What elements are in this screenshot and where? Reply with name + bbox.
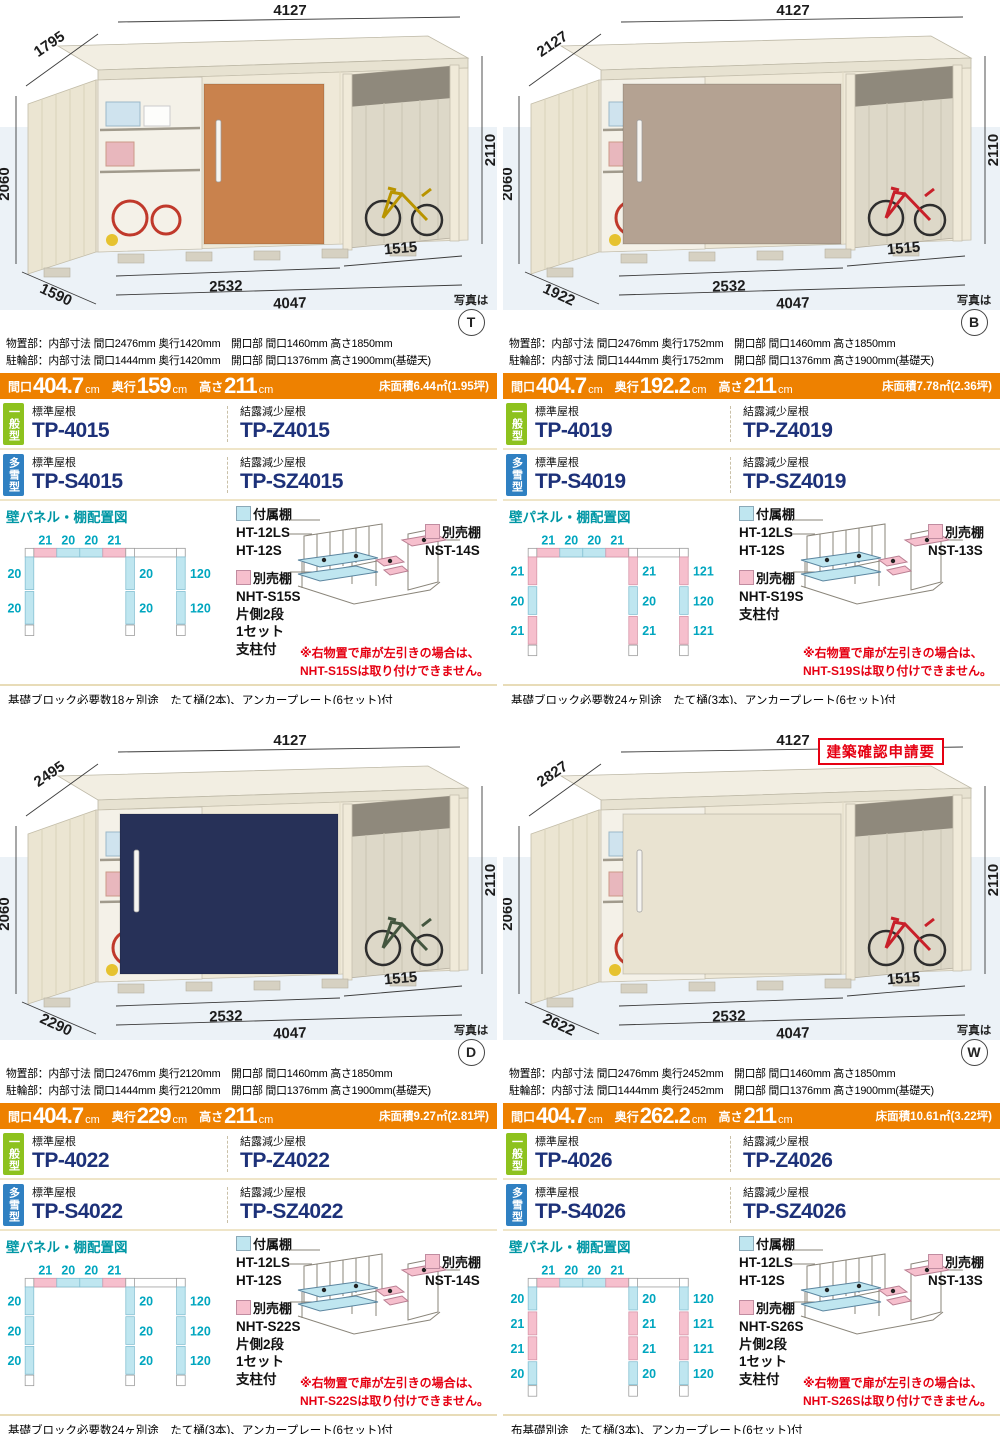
depth-value: 229	[137, 1103, 171, 1129]
warning-note: ※右物置で扉が左引きの場合は、 NHT-S22Sは取り付けできません。	[300, 1374, 489, 1410]
svg-text:21: 21	[107, 1264, 121, 1278]
svg-text:20: 20	[564, 1264, 578, 1278]
photo-badge-letter: B	[961, 309, 988, 336]
dim-front-bay: 1515	[886, 969, 921, 989]
panel-diagram-area: 壁パネル・棚配置図 2120202120202020120120	[6, 504, 236, 682]
roof-type-label: 結露減少屋根	[743, 1187, 1000, 1200]
height-value: 211	[744, 373, 777, 399]
building-approval-badge: 建築確認申請要	[818, 738, 945, 765]
height-label: 高さ	[719, 378, 743, 395]
photo-badge-letter: T	[458, 309, 485, 336]
svg-text:20: 20	[139, 568, 153, 582]
svg-text:20: 20	[7, 1295, 21, 1309]
general-type-badge: 一般型	[506, 403, 527, 445]
wall-panel-diagram: 21202021202020202020120120120	[6, 1257, 236, 1407]
floor-area: 床面積7.78㎡(2.36坪)	[882, 378, 992, 394]
svg-text:20: 20	[84, 1264, 98, 1278]
size-bar: 間口404.7cm 奥行192.2cm 高さ211cm 床面積7.78㎡(2.3…	[503, 373, 1000, 399]
attached-shelf-models: HT-12LS HT-12S	[739, 524, 795, 559]
width-value: 404.7	[536, 373, 586, 399]
attached-shelf-models: HT-12LS HT-12S	[236, 524, 292, 559]
optional-shelf-label: 別売棚	[945, 525, 984, 540]
depth-value: 262.2	[640, 1103, 690, 1129]
shed-photo: 4127 2127 2060 2110 2532 4047 1515 1922	[503, 2, 1000, 310]
attached-shelf-swatch	[236, 506, 251, 521]
attached-shelf-models: HT-12LS HT-12S	[739, 1254, 795, 1289]
dim-height-right: 2110	[482, 134, 497, 167]
wall-panel-diagram: 2120202120202020120120	[6, 527, 236, 677]
photo-badge-letter: W	[961, 1039, 988, 1066]
svg-text:21: 21	[510, 565, 524, 579]
svg-text:20: 20	[61, 1264, 75, 1278]
optional-shelf-label: 別売棚	[253, 1301, 292, 1316]
svg-text:21: 21	[38, 534, 52, 548]
model-general-dew: TP-Z4015	[240, 419, 497, 442]
door-handle	[637, 120, 642, 182]
svg-text:20: 20	[139, 602, 153, 616]
dim-width-top: 4127	[776, 2, 809, 19]
snow-type-row: 多雪型 標準屋根TP-S4015 結露減少屋根TP-SZ4015	[0, 450, 497, 501]
sliding-door	[623, 84, 841, 244]
size-bar: 間口404.7cm 奥行262.2cm 高さ211cm 床面積10.61㎡(3.…	[503, 1103, 1000, 1129]
model-snow-std: TP-S4026	[535, 1200, 730, 1223]
dim-front-storage: 2532	[712, 1007, 746, 1025]
model-snow-dew: TP-SZ4019	[743, 470, 1000, 493]
svg-text:121: 121	[693, 625, 714, 639]
svg-text:20: 20	[587, 1264, 601, 1278]
roof-type-label: 標準屋根	[32, 457, 227, 470]
storage-spec: 物置部：内部寸法 間口2476mm 奥行1752mm 開口部 間口1460mm …	[509, 336, 994, 353]
model-snow-std: TP-S4022	[32, 1200, 227, 1223]
roof-type-label: 結露減少屋根	[240, 1187, 497, 1200]
height-value: 211	[224, 373, 257, 399]
shed-illustration: 4127 1795 2060 2110 2532 4047 1515 1590	[0, 2, 497, 310]
depth-label: 奥行	[112, 378, 136, 395]
dim-height-right: 2110	[985, 134, 1000, 167]
snow-type-badge: 多雪型	[506, 1184, 527, 1226]
shed-photo: 4127 2827 2060 2110 2532 4047 1515 2622 …	[503, 732, 1000, 1040]
optional-shelf-swatch	[425, 524, 440, 539]
panel-heading: 壁パネル・棚配置図	[6, 506, 236, 526]
svg-text:121: 121	[693, 565, 714, 579]
snow-type-row: 多雪型 標準屋根TP-S4022 結露減少屋根TP-SZ4022	[0, 1180, 497, 1231]
svg-text:20: 20	[7, 602, 21, 616]
dim-width-top: 4127	[776, 732, 809, 749]
roof-type-label: 結露減少屋根	[743, 406, 1000, 419]
general-type-badge: 一般型	[3, 403, 24, 445]
height-label: 高さ	[719, 1108, 743, 1125]
roof-type-label: 標準屋根	[535, 1136, 730, 1149]
optional-shelf-label: 別売棚	[253, 571, 292, 586]
foundation-note: 基礎ブロック必要数24ヶ別途 たて樋(3本)、アンカープレート(6セット)付	[0, 1414, 497, 1434]
photo-caption: 写真は	[952, 292, 996, 308]
width-label: 間口	[8, 1108, 32, 1125]
snow-type-row: 多雪型 標準屋根TP-S4019 結露減少屋根TP-SZ4019	[503, 450, 1000, 501]
model-general-std: TP-4022	[32, 1149, 227, 1172]
sliding-door	[623, 814, 841, 974]
svg-text:20: 20	[139, 1355, 153, 1369]
floor-area: 床面積6.44㎡(1.95坪)	[379, 378, 489, 394]
shed-photo: 4127 2495 2060 2110 2532 4047 1515 2290	[0, 732, 497, 1040]
depth-label: 奥行	[615, 378, 639, 395]
svg-text:20: 20	[7, 1355, 21, 1369]
snow-type-row: 多雪型 標準屋根TP-S4026 結露減少屋根TP-SZ4026	[503, 1180, 1000, 1231]
shed-illustration: 4127 2495 2060 2110 2532 4047 1515 2290	[0, 732, 497, 1040]
panel-diagram-area: 壁パネル・棚配置図 21202021212021212021121120121	[509, 504, 739, 682]
svg-text:20: 20	[510, 1367, 524, 1381]
svg-text:21: 21	[642, 1318, 656, 1332]
warning-note: ※右物置で扉が左引きの場合は、 NHT-S26Sは取り付けできません。	[803, 1374, 992, 1410]
spec-lines: 物置部：内部寸法 間口2476mm 奥行2452mm 開口部 間口1460mm …	[503, 1040, 1000, 1101]
shed-illustration: 4127 2127 2060 2110 2532 4047 1515 1922	[503, 2, 1000, 310]
svg-text:21: 21	[510, 625, 524, 639]
svg-text:20: 20	[7, 1325, 21, 1339]
general-type-badge: 一般型	[506, 1133, 527, 1175]
depth-label: 奥行	[615, 1108, 639, 1125]
model-snow-dew: TP-SZ4022	[240, 1200, 497, 1223]
bike-spec: 駐輪部：内部寸法 間口1444mm 奥行1752mm 開口部 間口1376mm …	[509, 353, 994, 370]
attached-shelf-label: 付属棚	[253, 507, 292, 522]
width-label: 間口	[511, 1108, 535, 1125]
photo-caption: 写真は	[449, 1022, 493, 1038]
svg-text:21: 21	[541, 534, 555, 548]
bike-spec: 駐輪部：内部寸法 間口1444mm 奥行2120mm 開口部 間口1376mm …	[6, 1083, 491, 1100]
roof-type-label: 結露減少屋根	[743, 457, 1000, 470]
width-value: 404.7	[536, 1103, 586, 1129]
panel-heading: 壁パネル・棚配置図	[509, 1236, 739, 1256]
panel-section: 壁パネル・棚配置図 21202021212021212021121120121 …	[503, 501, 1000, 684]
height-label: 高さ	[199, 1108, 223, 1125]
model-general-std: TP-4019	[535, 419, 730, 442]
model-snow-dew: TP-SZ4026	[743, 1200, 1000, 1223]
spec-lines: 物置部：内部寸法 間口2476mm 奥行1752mm 開口部 間口1460mm …	[503, 310, 1000, 371]
optional-shelf-label: 別売棚	[442, 1255, 481, 1270]
model-table: 一般型 標準屋根TP-4015 結露減少屋根TP-Z4015 多雪型 標準屋根T…	[0, 399, 497, 501]
dim-width-top: 4127	[273, 732, 306, 749]
model-general-dew: TP-Z4026	[743, 1149, 1000, 1172]
attached-shelf-swatch	[739, 506, 754, 521]
model-snow-std: TP-S4015	[32, 470, 227, 493]
svg-text:20: 20	[642, 1293, 656, 1307]
svg-text:21: 21	[642, 565, 656, 579]
optional-back-shelf-legend: 別売棚 NST-13S	[928, 524, 994, 559]
optional-shelf-swatch	[236, 1300, 251, 1315]
product-card: 4127 2495 2060 2110 2532 4047 1515 2290 …	[0, 732, 497, 1434]
storage-spec: 物置部：内部寸法 間口2476mm 奥行1420mm 開口部 間口1460mm …	[6, 336, 491, 353]
storage-spec: 物置部：内部寸法 間口2476mm 奥行2452mm 開口部 間口1460mm …	[509, 1066, 994, 1083]
foundation-note: 布基礎別途 たて樋(3本)、アンカープレート(6セット)付	[503, 1414, 1000, 1434]
dim-front-storage: 2532	[712, 277, 746, 295]
snow-type-badge: 多雪型	[506, 454, 527, 496]
svg-text:21: 21	[610, 1264, 624, 1278]
roof-type-label: 標準屋根	[535, 406, 730, 419]
dim-depth-top: 2127	[534, 28, 571, 61]
dim-depth-top: 2827	[534, 758, 571, 791]
optional-back-shelf-model: NST-13S	[928, 542, 994, 560]
optional-shelf-swatch	[928, 524, 943, 539]
general-type-row: 一般型 標準屋根TP-4022 結露減少屋根TP-Z4022	[0, 1129, 497, 1180]
model-snow-std: TP-S4019	[535, 470, 730, 493]
width-value: 404.7	[33, 373, 83, 399]
svg-text:120: 120	[190, 568, 211, 582]
svg-text:21: 21	[642, 1343, 656, 1357]
product-card: 4127 2827 2060 2110 2532 4047 1515 2622 …	[503, 732, 1000, 1434]
svg-text:20: 20	[7, 568, 21, 582]
photo-badge: 写真は T	[449, 292, 493, 336]
sliding-door	[204, 84, 324, 244]
optional-shelf-swatch	[928, 1254, 943, 1269]
catalog-grid: 4127 1795 2060 2110 2532 4047 1515 1590 …	[0, 0, 1000, 1434]
svg-text:21: 21	[610, 534, 624, 548]
foundation-note: 基礎ブロック必要数18ヶ別途 たて樋(2本)、アンカープレート(6セット)付	[0, 684, 497, 704]
warning-note: ※右物置で扉が左引きの場合は、 NHT-S15Sは取り付けできません。	[300, 644, 489, 680]
snow-type-badge: 多雪型	[3, 454, 24, 496]
optional-shelf-swatch	[425, 1254, 440, 1269]
shelf-legend-area: 付属棚 HT-12LS HT-12S 別売棚 NHT-S22S 片側2段 1セッ…	[236, 1234, 491, 1412]
model-snow-dew: TP-SZ4015	[240, 470, 497, 493]
photo-caption: 写真は	[952, 1022, 996, 1038]
product-card: 4127 1795 2060 2110 2532 4047 1515 1590 …	[0, 2, 497, 704]
svg-text:20: 20	[587, 534, 601, 548]
optional-back-shelf-legend: 別売棚 NST-14S	[425, 1254, 491, 1289]
roof-type-label: 結露減少屋根	[743, 1136, 1000, 1149]
svg-text:20: 20	[642, 595, 656, 609]
attached-shelf-label: 付属棚	[253, 1237, 292, 1252]
roof-type-label: 結露減少屋根	[240, 406, 497, 419]
floor-area: 床面積10.61㎡(3.22坪)	[876, 1108, 992, 1124]
model-table: 一般型 標準屋根TP-4019 結露減少屋根TP-Z4019 多雪型 標準屋根T…	[503, 399, 1000, 501]
svg-text:20: 20	[139, 1295, 153, 1309]
general-type-row: 一般型 標準屋根TP-4026 結露減少屋根TP-Z4026	[503, 1129, 1000, 1180]
attached-shelf-legend: 付属棚 HT-12LS HT-12S	[739, 1236, 795, 1289]
optional-back-shelf-model: NST-13S	[928, 1272, 994, 1290]
sliding-door	[120, 814, 338, 974]
svg-text:121: 121	[693, 1318, 714, 1332]
door-handle	[216, 120, 221, 182]
dim-depth-top: 2495	[31, 758, 68, 791]
svg-text:21: 21	[541, 1264, 555, 1278]
height-value: 211	[224, 1103, 257, 1129]
panel-heading: 壁パネル・棚配置図	[509, 506, 739, 526]
shelf-legend-area: 付属棚 HT-12LS HT-12S 別売棚 NHT-S26S 片側2段 1セッ…	[739, 1234, 994, 1412]
photo-badge: 写真は D	[449, 1022, 493, 1066]
svg-text:21: 21	[107, 534, 121, 548]
svg-text:121: 121	[693, 1343, 714, 1357]
dim-front-bay: 1515	[383, 969, 418, 989]
roof-type-label: 標準屋根	[535, 1187, 730, 1200]
svg-text:20: 20	[61, 534, 75, 548]
roof-type-label: 標準屋根	[32, 406, 227, 419]
svg-text:120: 120	[190, 1325, 211, 1339]
svg-text:21: 21	[642, 625, 656, 639]
size-bar: 間口404.7cm 奥行159cm 高さ211cm 床面積6.44㎡(1.95坪…	[0, 373, 497, 399]
general-type-row: 一般型 標準屋根TP-4015 結露減少屋根TP-Z4015	[0, 399, 497, 450]
optional-shelf-label: 別売棚	[442, 525, 481, 540]
foundation-note: 基礎ブロック必要数24ヶ別途 たて樋(3本)、アンカープレート(6セット)付	[503, 684, 1000, 704]
optional-shelf-swatch	[236, 570, 251, 585]
bike-spec: 駐輪部：内部寸法 間口1444mm 奥行1420mm 開口部 間口1376mm …	[6, 353, 491, 370]
product-card: 4127 2127 2060 2110 2532 4047 1515 1922 …	[503, 2, 1000, 704]
dim-height-left: 2060	[0, 167, 13, 200]
dim-front-total: 4047	[776, 294, 810, 310]
width-label: 間口	[511, 378, 535, 395]
svg-text:120: 120	[693, 1293, 714, 1307]
roof-type-label: 標準屋根	[32, 1187, 227, 1200]
panel-section: 壁パネル・棚配置図 212020212021212020212120120121…	[503, 1231, 1000, 1414]
svg-text:120: 120	[190, 1295, 211, 1309]
panel-section: 壁パネル・棚配置図 21202021202020202020120120120 …	[0, 1231, 497, 1414]
size-bar: 間口404.7cm 奥行229cm 高さ211cm 床面積9.27㎡(2.81坪…	[0, 1103, 497, 1129]
model-table: 一般型 標準屋根TP-4026 結露減少屋根TP-Z4026 多雪型 標準屋根T…	[503, 1129, 1000, 1231]
roof-type-label: 標準屋根	[32, 1136, 227, 1149]
model-general-std: TP-4026	[535, 1149, 730, 1172]
dim-depth-top: 1795	[31, 28, 68, 61]
door-handle	[134, 850, 139, 912]
height-value: 211	[744, 1103, 777, 1129]
svg-text:20: 20	[139, 1325, 153, 1339]
photo-badge-letter: D	[458, 1039, 485, 1066]
dim-height-left: 2060	[503, 897, 516, 930]
dim-front-bay: 1515	[383, 239, 418, 259]
model-table: 一般型 標準屋根TP-4022 結露減少屋根TP-Z4022 多雪型 標準屋根T…	[0, 1129, 497, 1231]
dim-height-right: 2110	[482, 864, 497, 897]
door-handle	[637, 850, 642, 912]
roof-type-label: 結露減少屋根	[240, 457, 497, 470]
open-storage-interior	[98, 77, 202, 252]
svg-text:21: 21	[510, 1318, 524, 1332]
photo-caption: 写真は	[449, 292, 493, 308]
attached-shelf-label: 付属棚	[756, 1237, 795, 1252]
spec-lines: 物置部：内部寸法 間口2476mm 奥行2120mm 開口部 間口1460mm …	[0, 1040, 497, 1101]
photo-badge: 写真は W	[952, 1022, 996, 1066]
svg-text:20: 20	[84, 534, 98, 548]
dim-front-total: 4047	[776, 1024, 810, 1040]
model-general-std: TP-4015	[32, 419, 227, 442]
svg-text:120: 120	[190, 602, 211, 616]
attached-shelf-legend: 付属棚 HT-12LS HT-12S	[236, 1236, 292, 1289]
svg-text:20: 20	[642, 1367, 656, 1381]
photo-badge: 写真は B	[952, 292, 996, 336]
shed-photo: 4127 1795 2060 2110 2532 4047 1515 1590	[0, 2, 497, 310]
general-type-row: 一般型 標準屋根TP-4019 結露減少屋根TP-Z4019	[503, 399, 1000, 450]
optional-shelf-swatch	[739, 570, 754, 585]
optional-shelf-label: 別売棚	[945, 1255, 984, 1270]
dim-height-left: 2060	[503, 167, 516, 200]
model-general-dew: TP-Z4019	[743, 419, 1000, 442]
svg-text:20: 20	[510, 1293, 524, 1307]
roof-type-label: 結露減少屋根	[240, 1136, 497, 1149]
optional-back-shelf-legend: 別売棚 NST-13S	[928, 1254, 994, 1289]
storage-spec: 物置部：内部寸法 間口2476mm 奥行2120mm 開口部 間口1460mm …	[6, 1066, 491, 1083]
optional-shelf-label: 別売棚	[756, 571, 795, 586]
svg-text:21: 21	[38, 1264, 52, 1278]
svg-text:120: 120	[190, 1355, 211, 1369]
dim-front-total: 4047	[273, 1024, 307, 1040]
warning-note: ※右物置で扉が左引きの場合は、 NHT-S19Sは取り付けできません。	[803, 644, 992, 680]
panel-heading: 壁パネル・棚配置図	[6, 1236, 236, 1256]
height-label: 高さ	[199, 378, 223, 395]
bike-spec: 駐輪部：内部寸法 間口1444mm 奥行2452mm 開口部 間口1376mm …	[509, 1083, 994, 1100]
attached-shelf-legend: 付属棚 HT-12LS HT-12S	[236, 506, 292, 559]
roof-type-label: 標準屋根	[535, 457, 730, 470]
dim-front-total: 4047	[273, 294, 307, 310]
svg-text:120: 120	[693, 1367, 714, 1381]
attached-shelf-legend: 付属棚 HT-12LS HT-12S	[739, 506, 795, 559]
snow-type-badge: 多雪型	[3, 1184, 24, 1226]
model-general-dew: TP-Z4022	[240, 1149, 497, 1172]
svg-text:21: 21	[510, 1343, 524, 1357]
panel-diagram-area: 壁パネル・棚配置図 212020212021212020212120120121…	[509, 1234, 739, 1412]
wall-panel-diagram: 21202021212021212021121120121	[509, 527, 739, 677]
depth-label: 奥行	[112, 1108, 136, 1125]
general-type-badge: 一般型	[3, 1133, 24, 1175]
svg-text:20: 20	[510, 595, 524, 609]
shelf-legend-area: 付属棚 HT-12LS HT-12S 別売棚 NHT-S15S 片側2段 1セッ…	[236, 504, 491, 682]
dim-width-top: 4127	[273, 2, 306, 19]
dim-front-storage: 2532	[209, 277, 243, 295]
dim-front-storage: 2532	[209, 1007, 243, 1025]
optional-back-shelf-model: NST-14S	[425, 542, 491, 560]
svg-text:120: 120	[693, 595, 714, 609]
attached-shelf-swatch	[236, 1236, 251, 1251]
dim-front-bay: 1515	[886, 239, 921, 259]
optional-shelf-label: 別売棚	[756, 1301, 795, 1316]
svg-text:20: 20	[564, 534, 578, 548]
attached-shelf-swatch	[739, 1236, 754, 1251]
panel-section: 壁パネル・棚配置図 2120202120202020120120 付属棚 HT-…	[0, 501, 497, 684]
attached-shelf-label: 付属棚	[756, 507, 795, 522]
attached-shelf-models: HT-12LS HT-12S	[236, 1254, 292, 1289]
optional-back-shelf-legend: 別売棚 NST-14S	[425, 524, 491, 559]
floor-area: 床面積9.27㎡(2.81坪)	[379, 1108, 489, 1124]
optional-shelf-swatch	[739, 1300, 754, 1315]
depth-value: 159	[137, 373, 171, 399]
shed-illustration: 4127 2827 2060 2110 2532 4047 1515 2622	[503, 732, 1000, 1040]
spec-lines: 物置部：内部寸法 間口2476mm 奥行1420mm 開口部 間口1460mm …	[0, 310, 497, 371]
shelf-legend-area: 付属棚 HT-12LS HT-12S 別売棚 NHT-S19S 支柱付	[739, 504, 994, 682]
dim-height-right: 2110	[985, 864, 1000, 897]
optional-back-shelf-model: NST-14S	[425, 1272, 491, 1290]
panel-diagram-area: 壁パネル・棚配置図 21202021202020202020120120120	[6, 1234, 236, 1412]
depth-value: 192.2	[640, 373, 690, 399]
wall-panel-diagram: 212020212021212020212120120121121120	[509, 1257, 739, 1407]
width-label: 間口	[8, 378, 32, 395]
width-value: 404.7	[33, 1103, 83, 1129]
dim-height-left: 2060	[0, 897, 13, 930]
